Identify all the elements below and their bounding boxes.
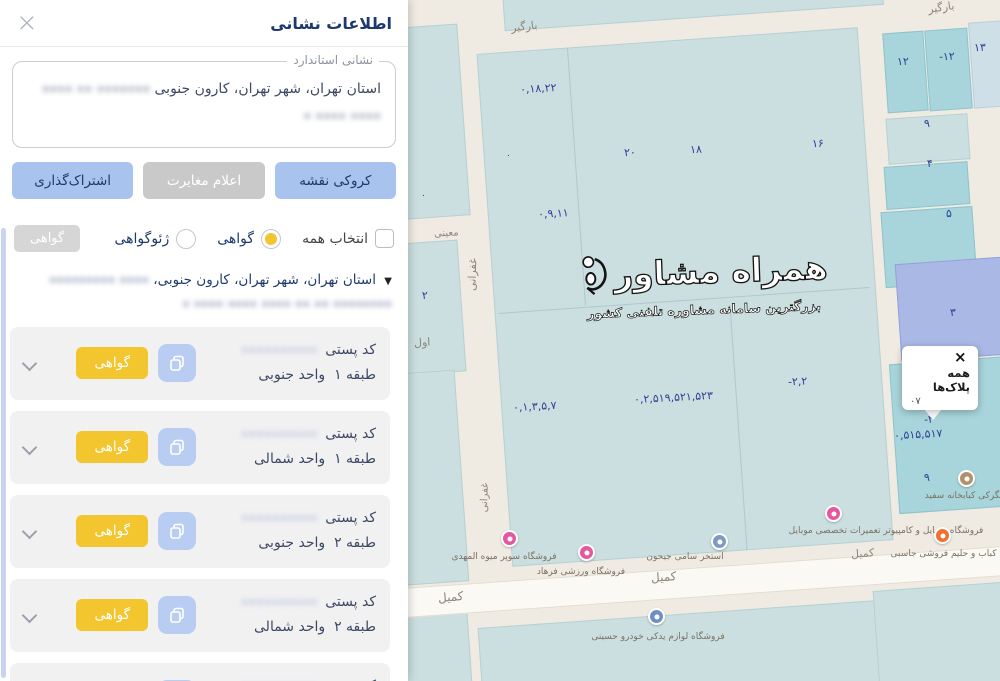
parcel-label: ۱۲ [897,55,909,69]
street-label-bargir: بارگیر [927,0,955,16]
map-block[interactable] [873,581,1000,681]
floor-label: طبقه ۱ [334,451,376,467]
floor-label: طبقه ۲ [334,535,376,551]
address-info-panel: اطلاعات نشانی × نشانی استاندارد استان ته… [0,0,408,681]
copy-icon [169,355,185,371]
copy-icon [169,439,185,455]
chevron-down-icon[interactable] [22,524,38,540]
chevron-down-icon[interactable] [22,440,38,456]
parcel-label: ۰,۹,۱۱ [538,206,569,221]
parcel-label: ۰ [506,151,511,161]
map-block[interactable] [408,24,471,221]
parcel-label: ۰,۱,۳,۵,۷ [513,399,557,414]
postal-code-value: ٭٭٭٭٭٭٭٭٭٭ [241,422,317,447]
street-label-komeyl: کمیل [437,589,463,605]
postal-code-label: کد پستی [325,506,376,531]
poi-dot [940,533,945,538]
parcel-label: -۱۲ [939,50,955,64]
parcel-label: ۱۸ [690,143,702,157]
close-icon[interactable]: × [16,12,38,34]
cert-gray-button[interactable]: گواهی [14,225,80,252]
postal-code-value: ٭٭٭٭٭٭٭٭٭٭ [241,338,317,363]
divider [0,46,408,47]
postal-code-value: ٭٭٭٭٭٭٭٭٭٭ [241,674,317,681]
share-button[interactable]: اشتراک‌گذاری [12,162,133,199]
parcel-label: ۲ [422,289,429,302]
unit-label: واحد شمالی [254,619,325,635]
poi-label: فروشگاه لوازم یدکی خودرو حسینی [583,632,733,642]
map-parcel-12[interactable] [882,31,928,114]
unit-label: واحد جنوبی [258,535,325,551]
parcel-label: ۹ [924,117,931,130]
postal-code-row: کد پستی ٭٭٭٭٭٭٭٭٭٭ طبقه ۱ واحد جنوبی گوا… [10,327,390,400]
poi-marker-fruit-shop[interactable] [501,530,518,547]
action-buttons: کروکی نقشه اعلام مغایرت اشتراک‌گذاری [12,162,396,199]
poi-dot [584,550,589,555]
cert-button[interactable]: گواهی [76,515,148,547]
postal-code-info: کد پستی ٭٭٭٭٭٭٭٭٭٭ طبقه ۱ واحد شمالی [206,422,376,472]
cert-button[interactable]: گواهی [76,431,148,463]
poi-label: کبابی و جگرکی کبابخانه سفید [900,491,1000,501]
parcel-label: ۱۳ [974,41,986,55]
standard-address-text: استان تهران، شهر تهران، کارون جنوبی ٭٭٭٭… [27,76,381,129]
sidebar-scrollbar[interactable] [1,228,6,678]
poi-marker-kebab[interactable] [934,527,951,544]
postal-code-label: کد پستی [325,338,376,363]
map-sketch-button[interactable]: کروکی نقشه [275,162,396,199]
chevron-down-icon[interactable] [22,608,38,624]
copy-icon [169,607,185,623]
poi-label: فروشگاه ورزشی فرهاد [526,567,636,577]
report-discrepancy-button[interactable]: اعلام مغایرت [143,162,264,199]
watermark: همراه مشاور بزرگترین سامانه مشاوره تلفنی… [577,238,829,322]
poi-dot [964,476,969,481]
postal-code-row: کد پستی ٭٭٭٭٭٭٭٭٭٭ طبقه ۲ واحد شمالی گوا… [10,579,390,652]
address-masked: ٭٭٭٭٭٭٭ ٭٭ ٭٭٭٭ [42,81,150,97]
plaques-popup: × همه پلاک‌ها ۰۷ [902,346,978,410]
poi-dot [831,511,836,516]
postal-code-row: کد پستی ٭٭٭٭٭٭٭٭٭٭ طبقه ۳ واحد جنوبی گوا… [10,663,390,681]
parcel-label: ۰ [421,191,426,201]
map-block[interactable] [408,240,467,377]
cert-radio-selected[interactable] [261,229,281,249]
poi-marker-kebab-house[interactable] [958,470,975,487]
floor-label: طبقه ۱ [334,367,376,383]
parcel-label: ۹ [924,471,931,484]
parcel-label: -۲,۲ [788,375,808,389]
postal-code-info: کد پستی ٭٭٭٭٭٭٭٭٭٭ طبقه ۱ واحد جنوبی [206,338,376,388]
tree-address-masked: ٭٭٭٭ ٭٭٭٭٭٭٭٭٭ [49,272,149,288]
popup-plaque-value[interactable]: ۰۷ [910,396,970,407]
poi-marker-mobile-shop[interactable] [825,505,842,522]
panel-header: اطلاعات نشانی × [0,0,408,46]
popup-close-icon[interactable]: × [954,350,970,364]
unit-label: واحد شمالی [254,451,325,467]
tree-collapse-icon[interactable]: ▼ [384,276,392,287]
poi-dot [654,614,659,619]
address-visible: استان تهران، شهر تهران، کارون جنوبی [155,81,382,97]
poi-label: استخر سامی جیحون [640,552,730,562]
cert-radio-label: گواهی [217,231,254,247]
poi-label: فروشگاه موبایل و کامپیوتر تعمیرات تخصصی … [756,526,1000,536]
street-label-moeini: معینی [434,227,459,239]
chevron-down-icon[interactable] [22,356,38,372]
postal-code-info: کد پستی ٭٭٭٭٭٭٭٭٭٭ طبقه ۲ واحد شمالی [206,590,376,640]
cert-button[interactable]: گواهی [76,347,148,379]
panel-title: اطلاعات نشانی [270,14,392,33]
parcel-label: ۲۰ [624,146,636,160]
street-label-aval: اول [414,335,431,349]
filter-controls: انتخاب همه گواهی ژئوگواهی گواهی [14,225,394,252]
map-parcel-13[interactable] [968,19,1000,108]
poi-marker-pool[interactable] [711,533,728,550]
postal-code-label: کد پستی [325,422,376,447]
watermark-person-phone-icon [577,245,611,304]
postal-code-row: کد پستی ٭٭٭٭٭٭٭٭٭٭ طبقه ۱ واحد شمالی گوا… [10,411,390,484]
select-all-checkbox[interactable] [375,229,394,248]
map-parcel-12m[interactable] [924,28,973,112]
geo-cert-radio[interactable] [176,229,196,249]
parcel-label: ۵ [946,207,953,220]
map-pane[interactable]: ۰,۱۸,۲۲ ۰ ۰ ۲۰ ۱۸ ۱۶ ۰,۹,۱۱ ۲ ۰,۱,۳,۵,۷ … [408,0,1000,681]
poi-label: کباب و حلیم فروشی جاسبی [886,549,1000,559]
radio-dot [265,233,277,245]
postal-code-info: کد پستی ٭٭٭٭٭٭٭٭٭٭ طبقه ۳ واحد جنوبی [206,674,376,681]
unit-label: واحد جنوبی [258,367,325,383]
tree-address-masked: ٭٭٭٭٭٭٭٭ ٭٭ ٭٭ ٭٭٭٭ ٭٭٭٭ ٭٭٭٭ ٭ [182,296,392,312]
postal-code-value: ٭٭٭٭٭٭٭٭٭٭ [241,590,317,615]
parcel-label: ۴ [927,157,934,170]
parcel-label: ۳ [950,306,957,319]
poi-dot [507,536,512,541]
geo-cert-radio-label: ژئوگواهی [114,231,169,247]
postal-code-value: ٭٭٭٭٭٭٭٭٭٭ [241,506,317,531]
address-box-legend: نشانی استاندارد [287,53,379,67]
floor-label: طبقه ۲ [334,619,376,635]
street-label-ghofrani: غفرانی [479,482,491,512]
poi-marker-auto-parts[interactable] [648,608,665,625]
address-masked: ٭٭٭٭ ٭٭٭٭ ٭ [303,108,381,124]
street-label-komeyl: کمیل [851,546,875,561]
copy-button[interactable] [158,512,196,550]
cert-button[interactable]: گواهی [76,599,148,631]
postal-code-list: کد پستی ٭٭٭٭٭٭٭٭٭٭ طبقه ۱ واحد جنوبی گوا… [10,327,390,681]
watermark-title: همراه مشاور [613,247,828,293]
tree-address-visible: استان تهران، شهر تهران، کارون جنوبی، [149,272,376,288]
postal-code-label: کد پستی [325,590,376,615]
address-tree-node[interactable]: ▼ استان تهران، شهر تهران، کارون جنوبی، ٭… [16,268,392,317]
postal-code-label: کد پستی [325,674,376,681]
copy-button[interactable] [158,428,196,466]
parcel-label: ۰,۵۱۵,۵۱۷ [894,427,943,443]
street-label-bargir: بارگیر [510,19,538,35]
street-label-komeyl: کمیل [651,569,677,585]
map-block[interactable] [502,0,884,31]
copy-button[interactable] [158,596,196,634]
parcel-label: ۱۶ [812,137,824,151]
postal-code-info: کد پستی ٭٭٭٭٭٭٭٭٭٭ طبقه ۲ واحد جنوبی [206,506,376,556]
copy-icon [169,523,185,539]
popup-pointer [924,409,942,429]
standard-address-box: نشانی استاندارد استان تهران، شهر تهران، … [12,61,396,148]
postal-code-row: کد پستی ٭٭٭٭٭٭٭٭٭٭ طبقه ۲ واحد جنوبی گوا… [10,495,390,568]
poi-dot [717,539,722,544]
street-label-ghofrani: غفرانی [465,258,479,291]
poi-label: فروشگاه سوپر میوه المهدی [448,552,560,562]
popup-title: همه پلاک‌ها [910,366,970,394]
parcel-label: ۰,۱۸,۲۲ [520,81,557,96]
poi-marker-sport-shop[interactable] [578,544,595,561]
select-all-label: انتخاب همه [302,231,368,247]
copy-button[interactable] [158,344,196,382]
